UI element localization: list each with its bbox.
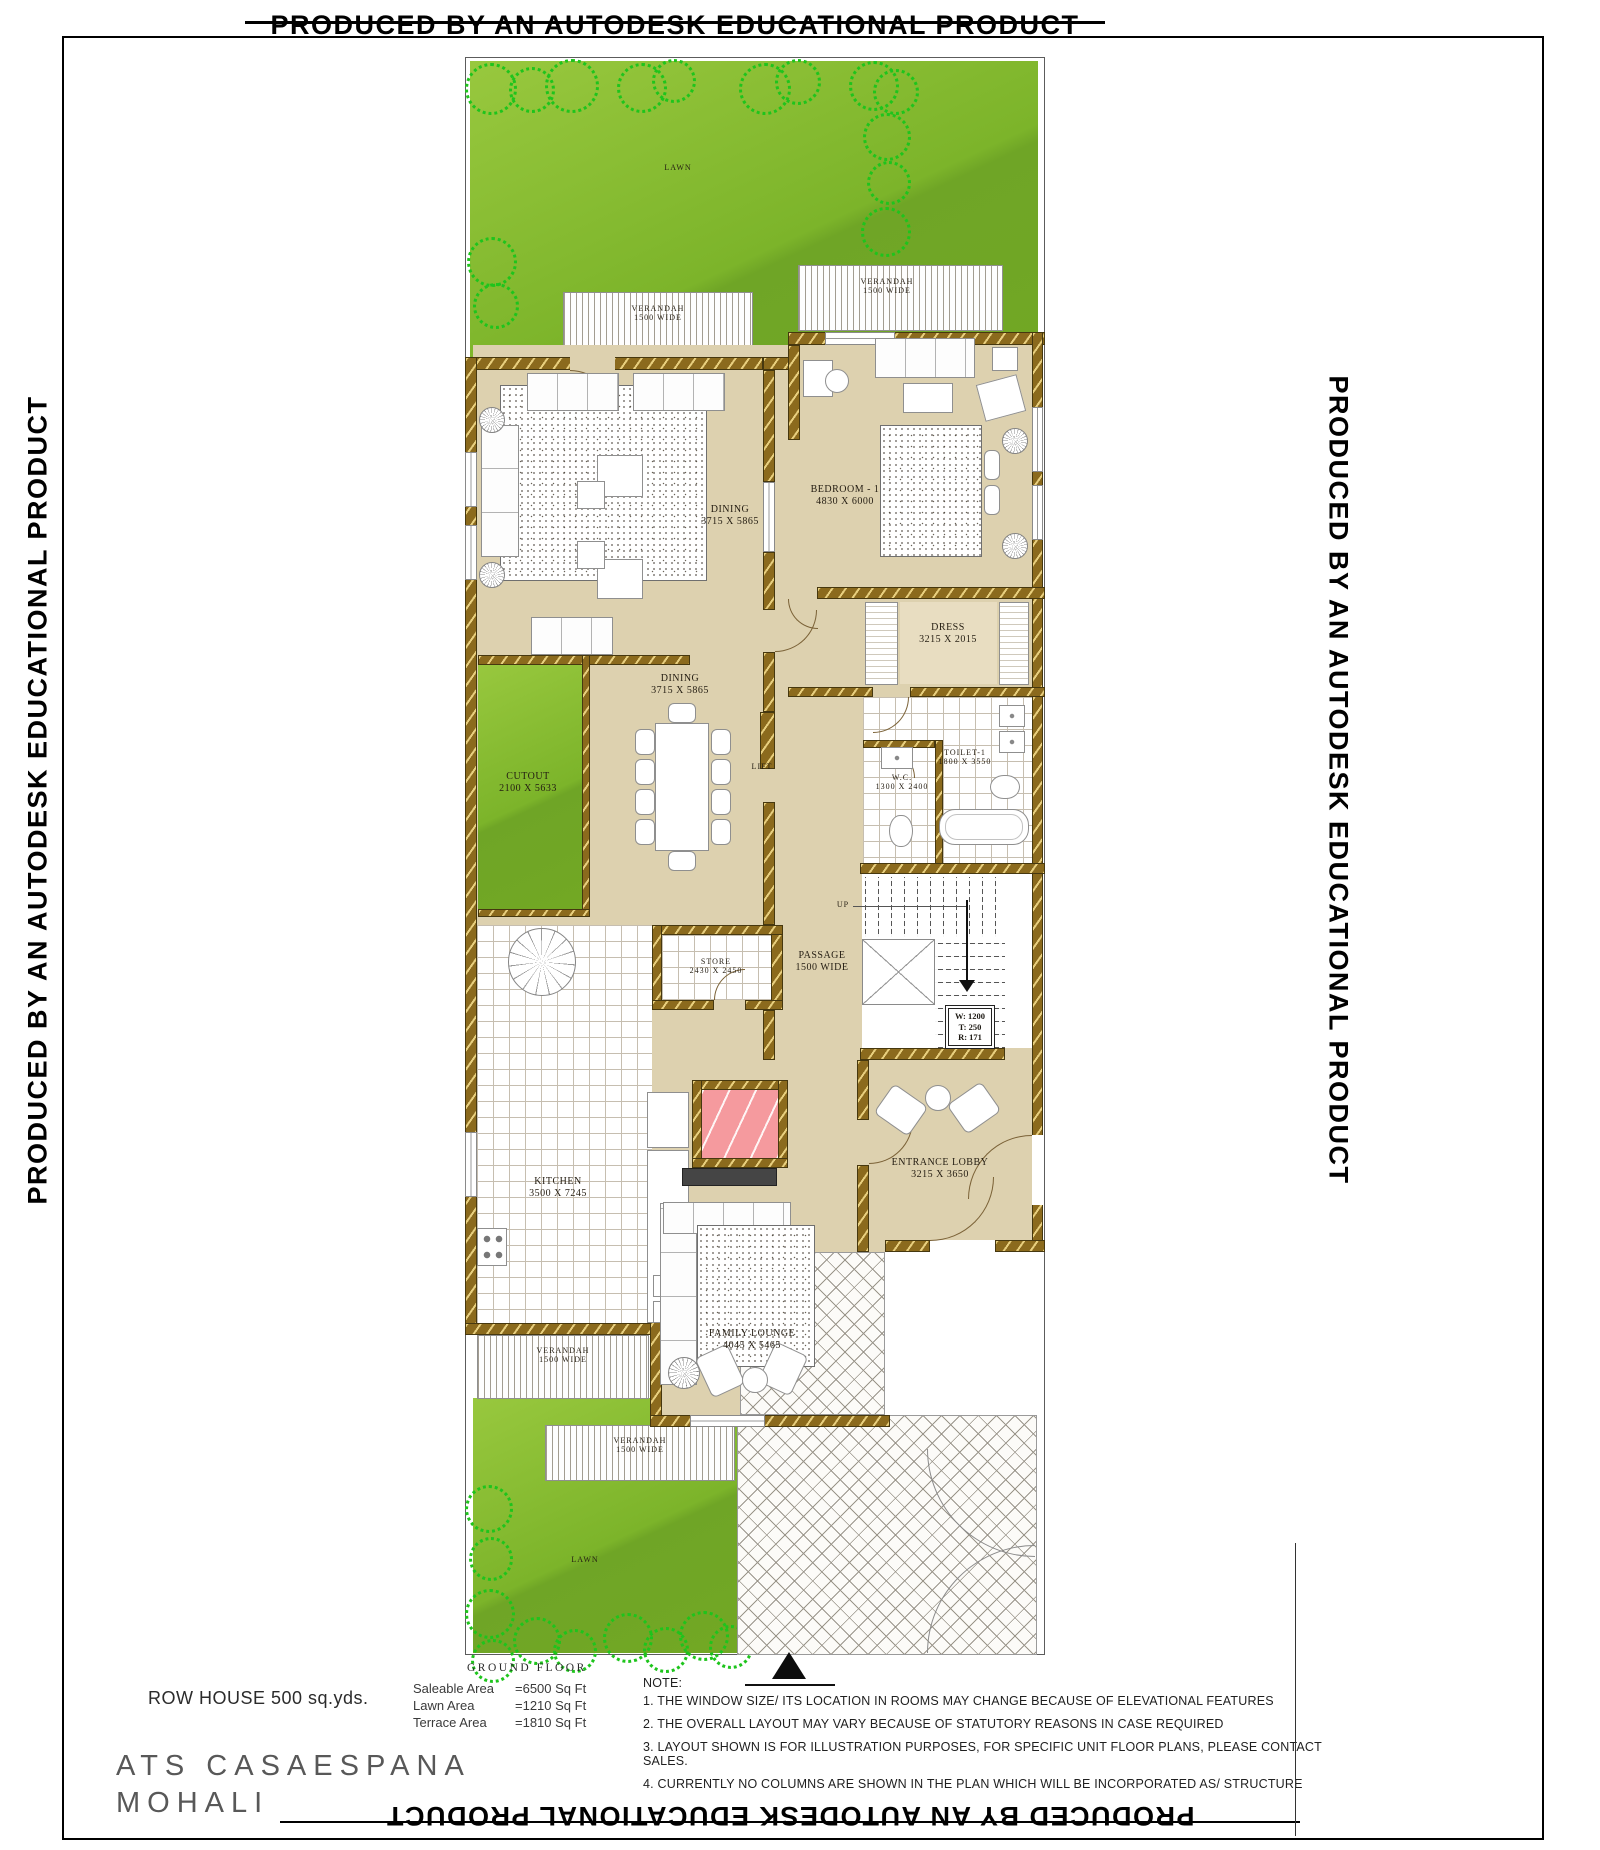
living-label: DINING3715 X 5865 xyxy=(701,504,759,527)
stair-tread: T: 250 xyxy=(949,1022,991,1033)
stair-spec-box: W: 1200 T: 250 R: 171 xyxy=(948,1008,992,1046)
titleblock-divider-line xyxy=(1295,1543,1296,1836)
wc-label: W.C.1300 X 2400 xyxy=(876,773,929,791)
kitchen-label: KITCHEN3500 X 7245 xyxy=(529,1176,587,1199)
verandah-tl-label: VERANDAH1500 WIDE xyxy=(632,304,685,322)
autodesk-stamp-right: PRODUCED BY AN AUTODESK EDUCATIONAL PROD… xyxy=(1323,375,1354,1184)
cutout-label: CUTOUT2100 X 5633 xyxy=(499,771,557,794)
stamp-strike-line-top xyxy=(245,21,1105,24)
stair-up-label: UP xyxy=(837,900,849,909)
stair-riser: R: 171 xyxy=(949,1032,991,1043)
passage-label: PASSAGE1500 WIDE xyxy=(796,950,849,973)
stamp-strike-line-bottom xyxy=(280,1821,1300,1823)
lawn-top-label: LAWN xyxy=(664,163,691,172)
dining-label: DINING3715 X 5865 xyxy=(651,673,709,696)
family-lounge-label: FAMILY LOUNGE4045 X 5465 xyxy=(709,1328,795,1351)
verandah-bc-label: VERANDAH1500 WIDE xyxy=(614,1436,667,1454)
dress-label: DRESS3215 X 2015 xyxy=(919,622,977,645)
stair-width: W: 1200 xyxy=(949,1011,991,1022)
verandah-bl-label: VERANDAH1500 WIDE xyxy=(537,1346,590,1364)
lift-label: LIFT xyxy=(752,762,773,771)
toilet1-label: TOILET-11800 X 3550 xyxy=(939,748,992,766)
autodesk-stamp-bottom: PRODUCED BY AN AUTODESK EDUCATIONAL PROD… xyxy=(385,1800,1194,1831)
bedroom1-label: BEDROOM - 14830 X 6000 xyxy=(811,484,880,507)
store-label: STORE2430 X 2450 xyxy=(690,957,743,975)
autodesk-stamp-top: PRODUCED BY AN AUTODESK EDUCATIONAL PROD… xyxy=(270,10,1079,41)
autodesk-stamp-left: PRODUCED BY AN AUTODESK EDUCATIONAL PROD… xyxy=(23,395,54,1204)
lawn-bottom-label: LAWN xyxy=(571,1555,598,1564)
entrance-lobby-label: ENTRANCE LOBBY3215 X 3650 xyxy=(892,1157,989,1180)
verandah-tr-label: VERANDAH1500 WIDE xyxy=(861,277,914,295)
